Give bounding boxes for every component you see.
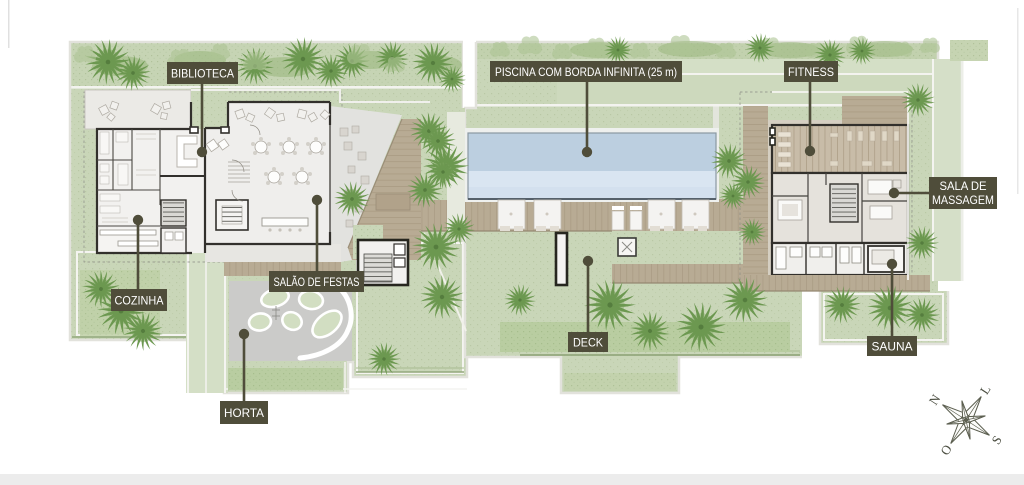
- svg-text:SAUNA: SAUNA: [872, 340, 913, 354]
- svg-text:BIBLIOTECA: BIBLIOTECA: [171, 67, 234, 81]
- svg-text:SALÃO DE FESTAS: SALÃO DE FESTAS: [274, 275, 360, 289]
- svg-text:SALA DE: SALA DE: [940, 179, 987, 193]
- svg-text:FITNESS: FITNESS: [788, 65, 834, 79]
- svg-text:MASSAGEM: MASSAGEM: [932, 193, 994, 207]
- svg-text:HORTA: HORTA: [224, 406, 264, 420]
- svg-text:DECK: DECK: [573, 336, 603, 350]
- svg-text:COZINHA: COZINHA: [115, 294, 164, 308]
- svg-text:PISCINA COM BORDA INFINITA (25: PISCINA COM BORDA INFINITA (25 m): [495, 65, 677, 79]
